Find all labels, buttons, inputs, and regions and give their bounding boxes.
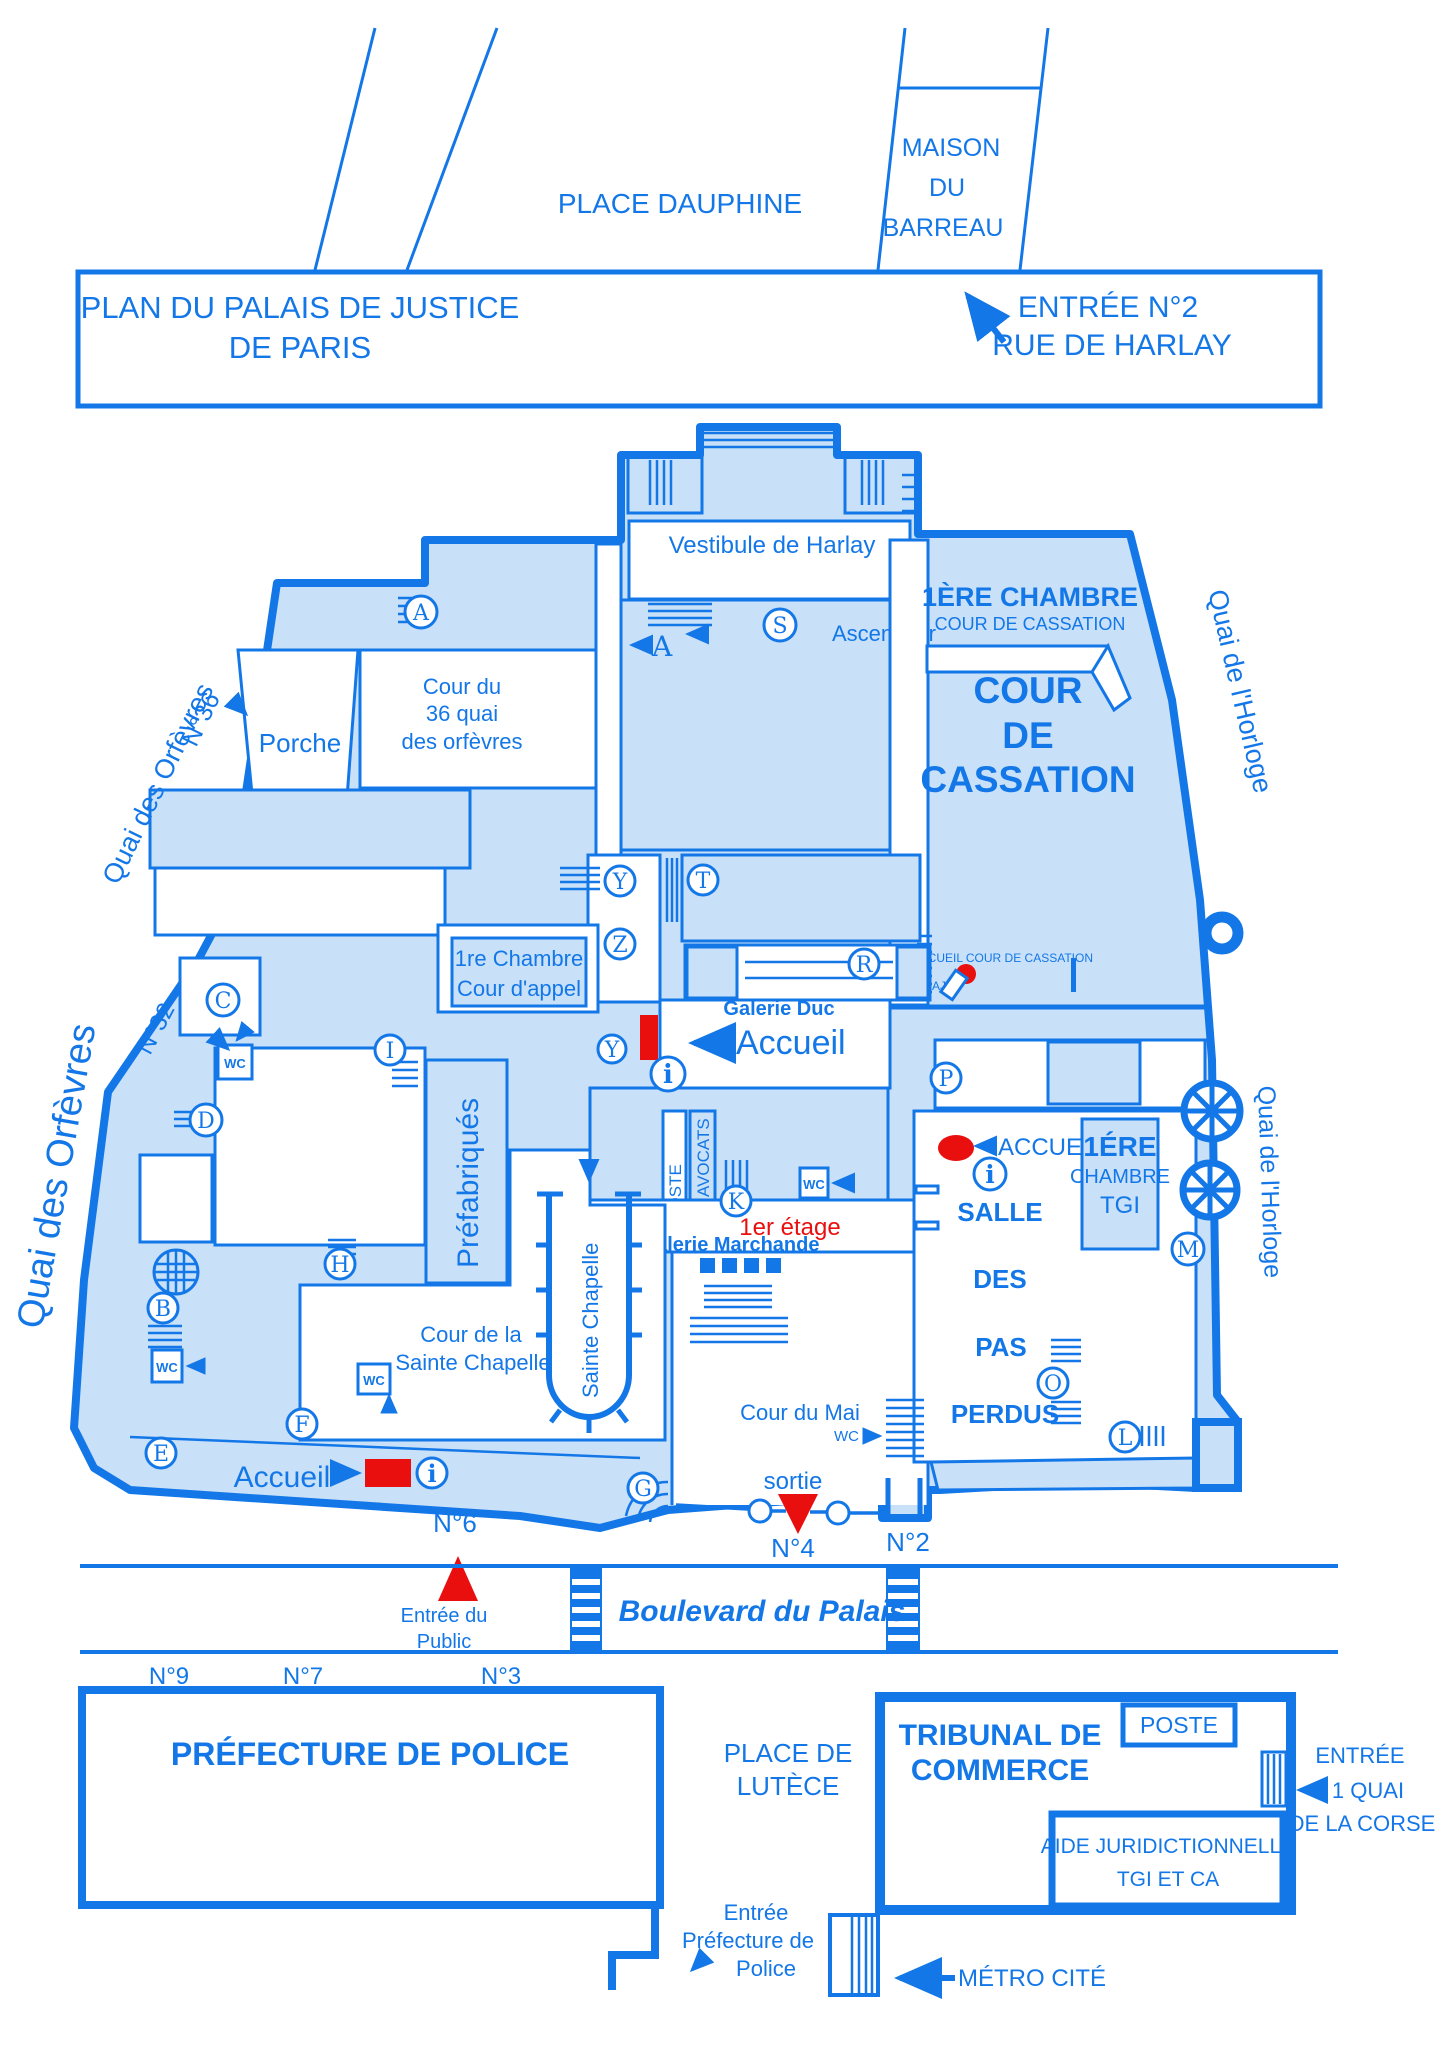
- sainte-chapelle-label: Sainte Chapelle: [578, 1243, 603, 1398]
- wall-tick: [1071, 958, 1076, 992]
- svg-text:A: A: [412, 601, 430, 626]
- n2-label: N°2: [886, 1527, 930, 1557]
- tribunal-label: TRIBUNAL DE: [899, 1719, 1102, 1752]
- crosswalk-icon: [570, 1568, 602, 1650]
- marker-E: E: [146, 1438, 176, 1468]
- entree-prefecture-label2: Préfecture de: [682, 1928, 814, 1953]
- info-icon: i: [974, 1158, 1006, 1190]
- marker-I: I: [375, 1035, 405, 1065]
- marchande-step: [722, 1258, 737, 1273]
- marker-F: F: [287, 1409, 317, 1439]
- red-triangle-n6: [438, 1556, 478, 1601]
- wc-label: WC: [803, 1177, 825, 1192]
- svg-text:P: P: [939, 1067, 954, 1092]
- svg-text:D: D: [197, 1109, 215, 1134]
- cour-mai-label: Cour du Mai: [740, 1400, 860, 1425]
- red-ellipse-accueil-tgi: [938, 1135, 974, 1161]
- wc-label: WC: [363, 1373, 385, 1388]
- avocats-label: AVOCATS: [694, 1118, 713, 1197]
- svg-text:L: L: [1118, 1426, 1133, 1451]
- map-svg: PLACE DAUPHINE MAISON DU BARREAU PLAN DU…: [0, 0, 1448, 2048]
- cour36-label: 36 quai: [426, 701, 498, 726]
- wheel-icon: [1183, 1163, 1237, 1217]
- svg-text:I: I: [386, 1039, 395, 1064]
- boulevard-label: Boulevard du Palais: [619, 1595, 906, 1628]
- wheel-icon: [1184, 1083, 1240, 1139]
- svg-text:E: E: [153, 1442, 169, 1467]
- des-label: DES: [973, 1264, 1026, 1294]
- wc-label: WC: [156, 1360, 178, 1375]
- wc-label: WC: [224, 1056, 246, 1071]
- cour36-label: Cour du: [423, 674, 501, 699]
- marker-B: B: [148, 1293, 178, 1323]
- prefecture-entry-arrow-icon: [692, 1956, 706, 1970]
- n4-label: N°4: [771, 1533, 815, 1563]
- cour-cassation-label: DE: [1002, 715, 1053, 756]
- map-title-2: DE PARIS: [229, 330, 371, 365]
- gate-circle: [749, 1500, 771, 1522]
- gallery-band: [927, 646, 1108, 672]
- tgi-label: CHAMBRE: [1070, 1166, 1170, 1188]
- svg-text:M: M: [1177, 1238, 1200, 1263]
- door-mark: [916, 1222, 938, 1229]
- marker-O: O: [1038, 1368, 1068, 1398]
- n3-label: N°3: [481, 1663, 521, 1690]
- street-line: [407, 28, 497, 270]
- maison-barreau-label: DU: [929, 174, 965, 202]
- r-room: [687, 947, 737, 998]
- marker-Z: Z: [605, 929, 635, 959]
- svg-text:F: F: [294, 1413, 309, 1438]
- cour-cassation-label: COUR: [974, 670, 1083, 711]
- red-accueil-box: [640, 1015, 658, 1060]
- svg-text:K: K: [728, 1190, 745, 1215]
- svg-text:B: B: [155, 1297, 171, 1322]
- svg-text:i: i: [985, 1160, 995, 1189]
- aide-box: [1052, 1814, 1283, 1906]
- facade-room: [140, 1155, 212, 1242]
- marker-L: L: [1110, 1422, 1140, 1452]
- maison-barreau-label: MAISON: [902, 134, 1001, 162]
- place-lutece-label: PLACE DE: [724, 1738, 853, 1768]
- street-line: [315, 28, 375, 270]
- gate-circle: [827, 1502, 849, 1524]
- salle-label: SALLE: [957, 1197, 1042, 1227]
- svg-text:i: i: [427, 1459, 436, 1488]
- svg-text:Y: Y: [604, 1038, 620, 1063]
- se-corner-block: [1196, 1422, 1238, 1488]
- sortie-label: sortie: [764, 1468, 823, 1495]
- corridor: [155, 868, 445, 935]
- marker-T: T: [688, 865, 718, 895]
- marker-Y2: Y: [598, 1035, 626, 1063]
- accueil-cassation-label: ACCUEIL COUR DE CASSATION: [911, 951, 1093, 965]
- accueil-west-label: Accueil: [234, 1461, 331, 1494]
- n6-label: N°6: [433, 1508, 477, 1538]
- entree-prefecture-label: Entrée: [724, 1900, 789, 1925]
- marker-K: K: [721, 1186, 751, 1216]
- palais-de-justice-map: PLACE DAUPHINE MAISON DU BARREAU PLAN DU…: [0, 0, 1448, 2048]
- prefecture-box: [82, 1690, 660, 1905]
- svg-text:H: H: [330, 1253, 349, 1278]
- svg-text:S: S: [772, 614, 787, 639]
- prefecture-label: PRÉFECTURE DE POLICE: [171, 1736, 569, 1772]
- svg-text:O: O: [1044, 1372, 1062, 1397]
- map-title: PLAN DU PALAIS DE JUSTICE: [81, 290, 520, 325]
- pas-label: PAS: [975, 1332, 1027, 1362]
- west-rooms: [150, 790, 470, 868]
- marker-Y1: Y: [605, 866, 635, 896]
- prefecture-corner: [612, 1905, 655, 1990]
- svg-text:Z: Z: [612, 933, 627, 958]
- prefabriques-label: Préfabriqués: [452, 1098, 485, 1268]
- red-accueil-box-west: [365, 1459, 411, 1487]
- chambre-cassation-label2: COUR DE CASSATION: [935, 614, 1126, 634]
- cour-sc-label2: Sainte Chapelle: [395, 1350, 550, 1375]
- info-icon: i: [651, 1057, 685, 1091]
- marker-R: R: [849, 949, 879, 979]
- top-streets: PLACE DAUPHINE MAISON DU BARREAU: [315, 28, 1048, 270]
- marchande-step: [766, 1258, 781, 1273]
- cour-sc-label: Cour de la: [420, 1322, 522, 1347]
- n7-label: N°7: [283, 1663, 323, 1690]
- vestibule-label: Vestibule de Harlay: [669, 532, 876, 559]
- entree-public-label: Entrée du: [401, 1605, 488, 1627]
- r-room: [897, 947, 928, 998]
- n9-label: N°9: [149, 1663, 189, 1690]
- marker-D: D: [190, 1104, 222, 1136]
- place-lutece-label2: LUTÈCE: [737, 1771, 840, 1801]
- stair-a-label: A: [651, 630, 673, 663]
- street-line: [1020, 28, 1048, 270]
- quai-horloge-bottom-label: Quai de l'Horloge: [1252, 1085, 1287, 1278]
- svg-text:C: C: [215, 989, 232, 1014]
- round-tower-icon: [1206, 917, 1238, 949]
- svg-text:R: R: [856, 953, 874, 978]
- metro-entrance-icon: [830, 1915, 878, 1995]
- accueil-central-label: Accueil: [736, 1024, 846, 1062]
- entree-corse-label: ENTRÉE: [1315, 1743, 1404, 1768]
- cour-cassation-label: CASSATION: [920, 759, 1135, 800]
- porche-label: Porche: [259, 728, 341, 758]
- svg-text:G: G: [634, 1477, 652, 1502]
- ne-court-room: [1048, 1042, 1140, 1104]
- poste-tc-label: POSTE: [1140, 1712, 1218, 1738]
- aide-label: AIDE JURIDICTIONNELLE: [1041, 1835, 1295, 1858]
- svg-text:i: i: [663, 1060, 673, 1090]
- red-triangle-sortie: [778, 1494, 818, 1534]
- svg-text:T: T: [696, 869, 711, 894]
- marker-C: C: [207, 984, 239, 1016]
- entree-corse-label2: 1 QUAI: [1332, 1778, 1404, 1803]
- entree-prefecture-label3: Police: [736, 1956, 796, 1981]
- metro-cite-label: MÉTRO CITÉ: [958, 1965, 1106, 1992]
- perdus-label: PERDUS: [951, 1399, 1059, 1429]
- se-corridor: [931, 1458, 1196, 1490]
- aide-label2: TGI ET CA: [1117, 1868, 1219, 1891]
- marker-A: A: [405, 596, 437, 628]
- door-mark: [916, 1186, 938, 1193]
- entrance2-label: ENTRÉE N°2: [1018, 291, 1198, 324]
- marker-M: M: [1172, 1233, 1204, 1265]
- info-icon: i: [417, 1458, 447, 1488]
- marker-P: P: [931, 1063, 961, 1093]
- place-dauphine-label: PLACE DAUPHINE: [558, 188, 802, 219]
- cour36-label: des orfèvres: [401, 729, 522, 754]
- quai-horloge-top-label: Quai de l'Horloge: [1202, 587, 1278, 796]
- marker-H: H: [325, 1249, 355, 1279]
- maison-barreau-label: BARREAU: [883, 214, 1004, 242]
- marchande-step: [744, 1258, 759, 1273]
- marker-S: S: [764, 609, 796, 641]
- marchande-step: [700, 1258, 715, 1273]
- entrance2-street: RUE DE HARLAY: [992, 329, 1232, 362]
- t-room: [682, 855, 920, 941]
- tc-entrance-icon: [1262, 1752, 1286, 1806]
- tgi-label: 1ÉRE: [1083, 1131, 1156, 1162]
- title-box: PLAN DU PALAIS DE JUSTICE DE PARIS ENTRÉ…: [78, 272, 1320, 406]
- chambre-appel-label2: Cour d'appel: [457, 976, 581, 1001]
- south-buildings: PRÉFECTURE DE POLICE PLACE DE LUTÈCE TRI…: [82, 1690, 1435, 1995]
- marker-G: G: [628, 1473, 658, 1503]
- tribunal-label2: COMMERCE: [911, 1754, 1089, 1787]
- chambre-appel-label: 1re Chambre: [455, 946, 583, 971]
- entree-corse-label3: DE LA CORSE: [1289, 1811, 1436, 1836]
- palace-building: Vestibule de Harlay Ascenseur A Cour du …: [74, 427, 1240, 1528]
- svg-text:Y: Y: [612, 870, 628, 895]
- tgi-label: TGI: [1100, 1192, 1140, 1219]
- entree-public-label2: Public: [417, 1631, 471, 1653]
- wc-label: WC: [834, 1428, 859, 1445]
- chambre-cassation-label: 1ÈRE CHAMBRE: [922, 581, 1138, 612]
- corridor: [596, 544, 621, 855]
- galerie-duc-label: Galerie Duc: [723, 998, 834, 1020]
